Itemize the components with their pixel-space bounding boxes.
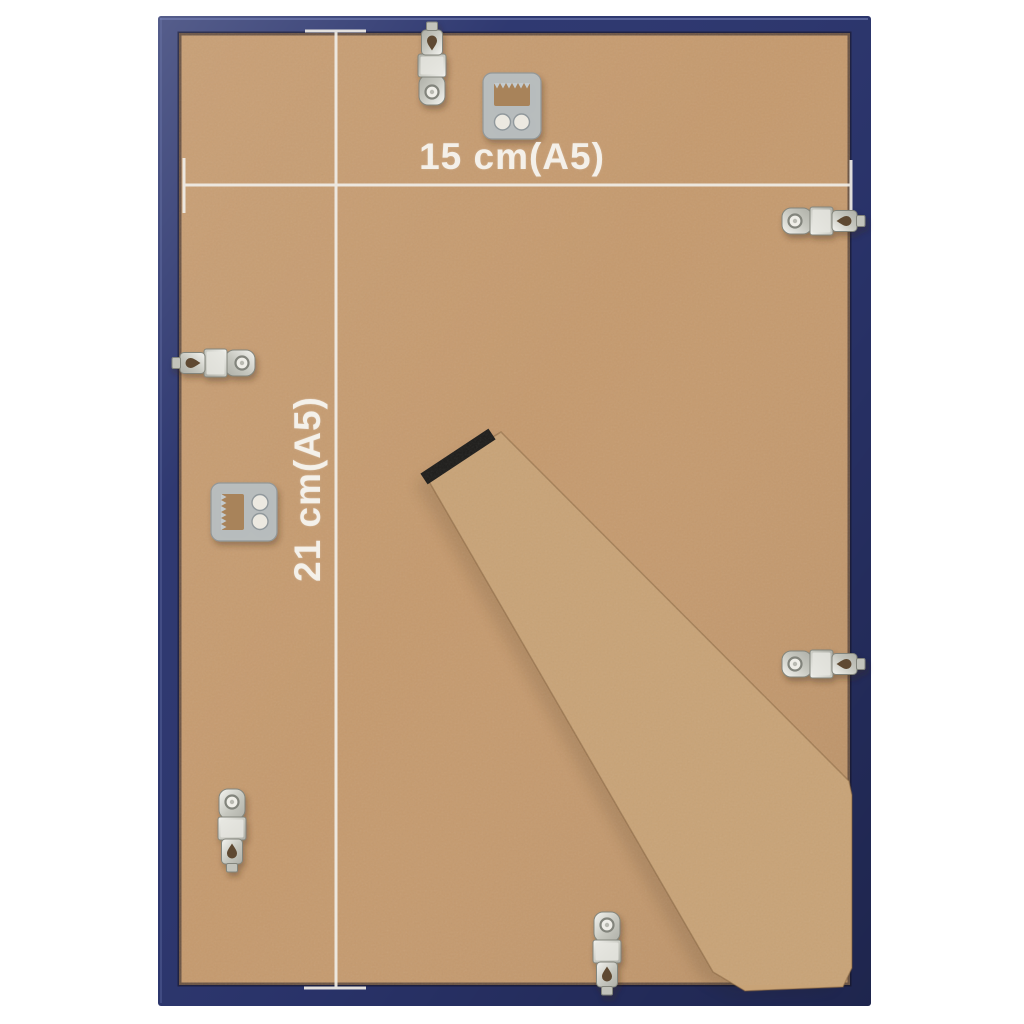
metal-clip-bottom-left-icon [218, 789, 246, 872]
metal-clip-left-icon [172, 349, 255, 377]
sawtooth-hanger-left-icon [211, 483, 277, 541]
width-dimension-label: 15 cm(A5) [419, 136, 605, 178]
height-dimension-label: 21 cm(A5) [287, 396, 329, 582]
metal-clip-middle-right-icon [782, 650, 865, 678]
sawtooth-hanger-top-icon [483, 73, 541, 139]
product-photo: 15 cm(A5) 21 cm(A5) [0, 0, 1024, 1024]
metal-clip-bottom-center-icon [593, 912, 621, 995]
metal-clip-top-icon [418, 22, 446, 105]
metal-clip-top-right-icon [782, 207, 865, 235]
